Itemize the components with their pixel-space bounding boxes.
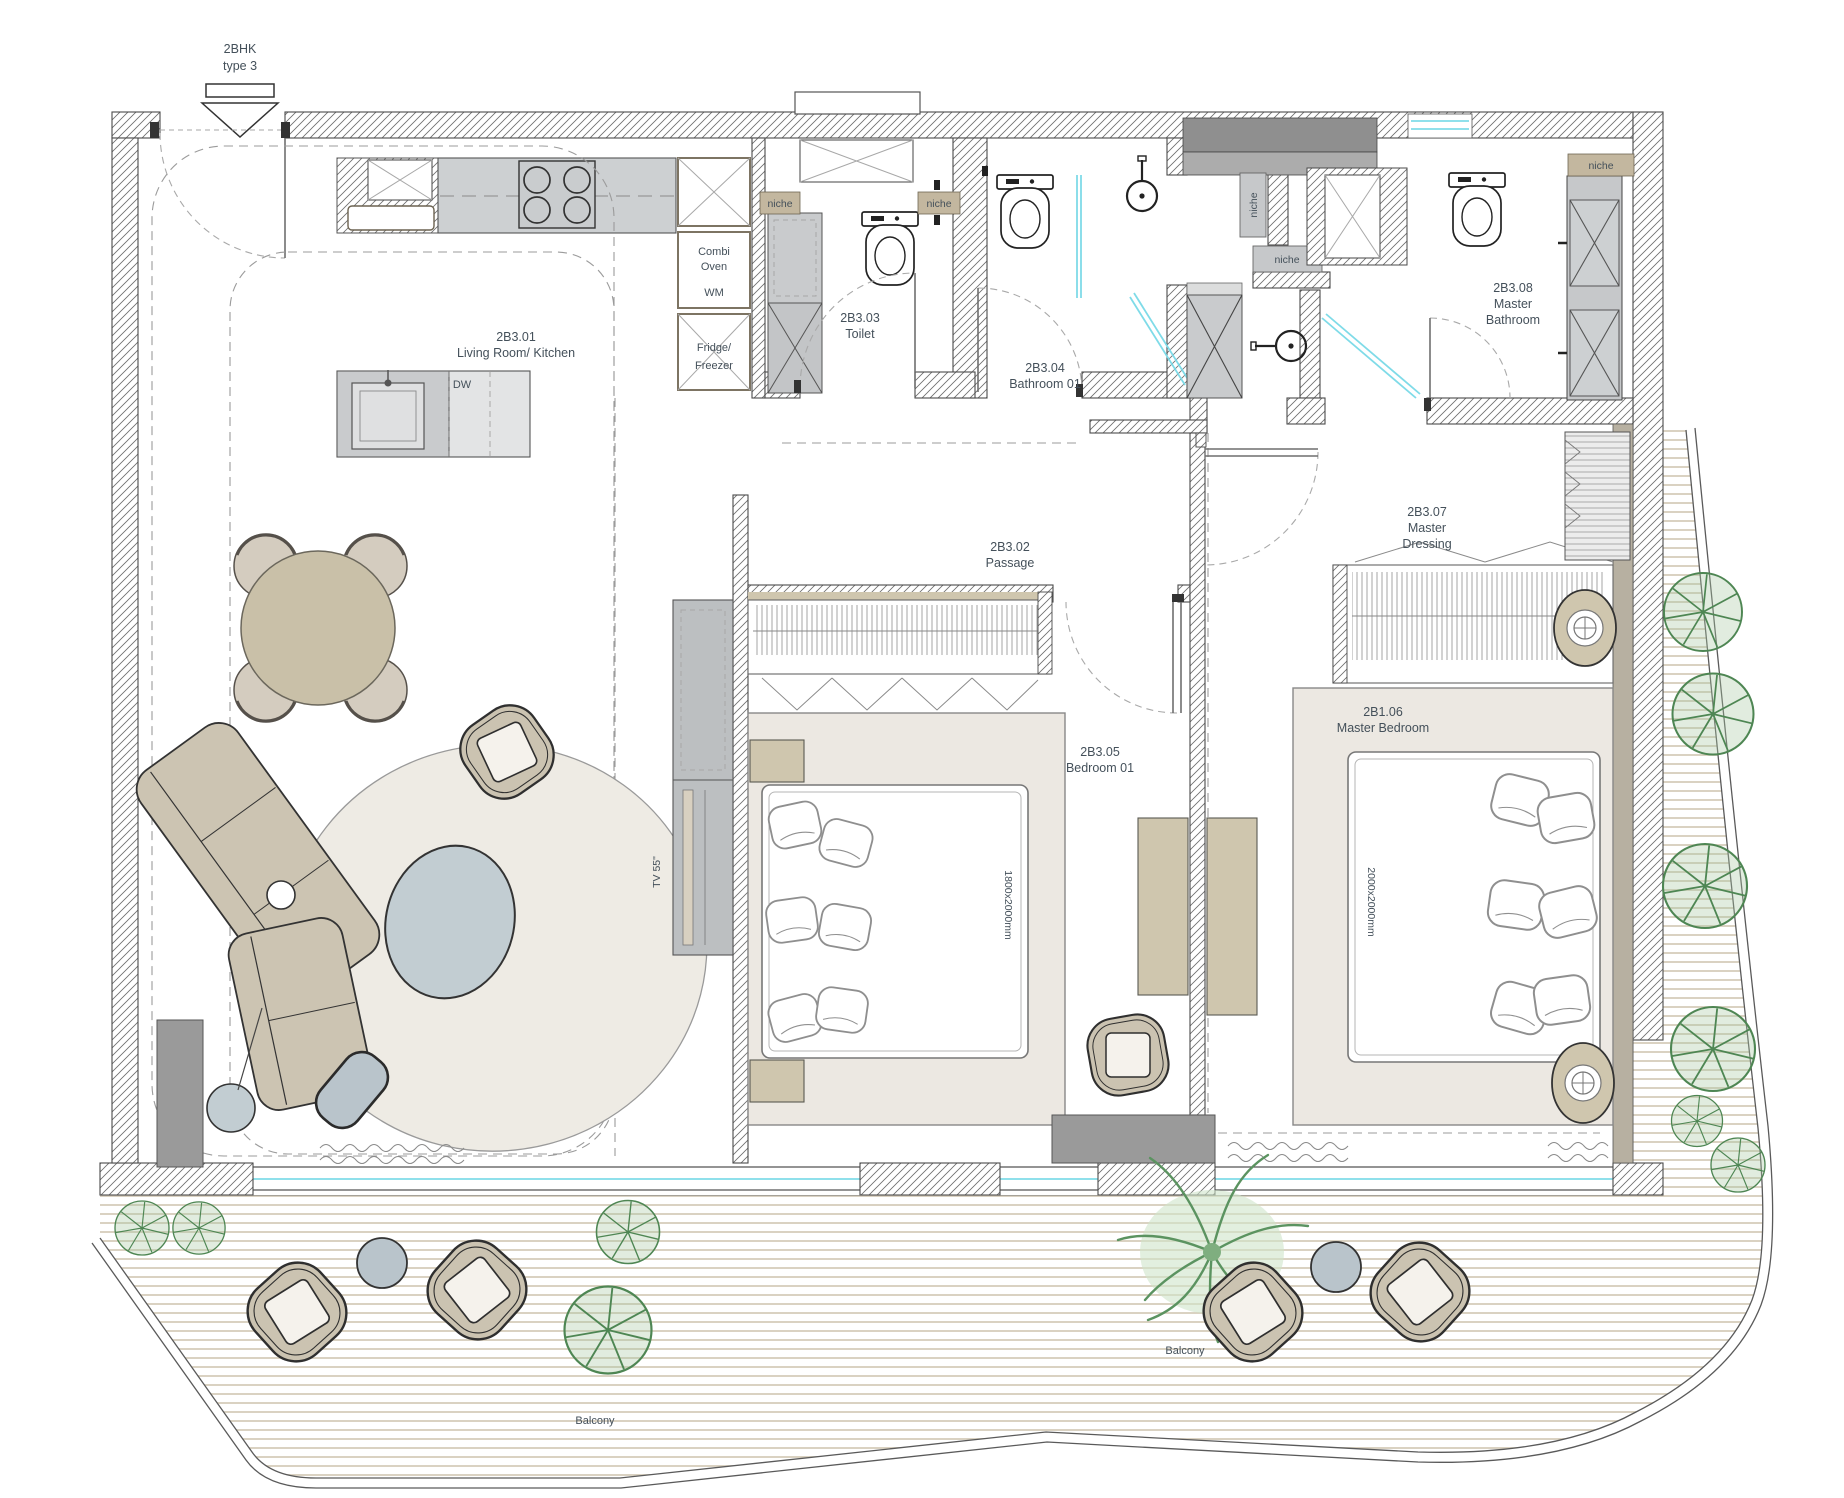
toilet-room	[768, 212, 918, 393]
dressing-cabinet	[1565, 432, 1630, 560]
mbed-side-table-bottom	[1552, 1043, 1614, 1123]
kitchen-tray	[348, 206, 434, 230]
niche-label-1: niche	[767, 198, 792, 210]
bedroom01-bed-size: 1800x2000mm	[1002, 870, 1014, 940]
entrance-arrow-bar	[206, 84, 274, 97]
bathroom01-code: 2B3.04	[1025, 361, 1065, 375]
dining-table	[241, 551, 395, 705]
bedroom01-name: Bedroom 01	[1066, 761, 1134, 775]
floor-plan-page: 2BHK type 3 2B3.01 Living Room/ Kitchen …	[0, 0, 1844, 1498]
tv-label: TV 55"	[651, 856, 663, 888]
master-bathroom	[1307, 168, 1622, 411]
niche-label-4: niche	[1274, 254, 1299, 266]
living-room-furniture	[127, 534, 733, 1179]
toilet-code: 2B3.03	[840, 311, 880, 325]
island-sink	[352, 383, 424, 449]
round-pillow	[267, 881, 295, 909]
fridge-label-2: Freezer	[695, 360, 733, 372]
unit-subtype-label: type 3	[223, 59, 257, 73]
entrance-arrow	[202, 103, 278, 137]
side-table	[207, 1084, 255, 1132]
sideboard	[157, 1020, 203, 1167]
bedroom01-code: 2B3.05	[1080, 745, 1120, 759]
combi-oven-label-1: Combi	[698, 246, 730, 258]
niche-label-3: niche	[1248, 192, 1260, 217]
dishwasher-label: DW	[453, 379, 472, 391]
toilet-name: Toilet	[845, 327, 875, 341]
balcony-table-left	[357, 1238, 407, 1288]
dressing-name-1: Master	[1408, 521, 1446, 535]
tv-wall	[673, 600, 733, 955]
bed01-shelf-bottom	[750, 1060, 804, 1102]
passage-name: Passage	[986, 556, 1035, 570]
parapet	[795, 92, 920, 114]
living-room-code: 2B3.01	[496, 330, 536, 344]
combi-oven-label-2: Oven	[701, 261, 727, 273]
bathroom01-name: Bathroom 01	[1009, 377, 1081, 391]
mbed-code: 2B1.06	[1363, 705, 1403, 719]
mbath-code: 2B3.08	[1493, 281, 1533, 295]
niche-label-5: niche	[1588, 160, 1613, 172]
mbed-dresser	[1207, 818, 1257, 1015]
living-room-name: Living Room/ Kitchen	[457, 346, 575, 360]
mbed-bed-size: 2000x2000mm	[1365, 867, 1377, 937]
dressing-code: 2B3.07	[1407, 505, 1447, 519]
bed01-shelf-top	[750, 740, 804, 782]
bedroom-01	[748, 592, 1215, 1163]
bed01-desk	[1052, 1115, 1215, 1163]
entrance	[150, 84, 290, 258]
toilet-vanity	[768, 213, 822, 303]
balcony-left-label: Balcony	[575, 1415, 615, 1427]
floor-plan-canvas: 2BHK type 3 2B3.01 Living Room/ Kitchen …	[0, 0, 1844, 1498]
niche-label-2: niche	[926, 198, 951, 210]
bottom-glazing	[100, 1163, 1663, 1195]
top-window	[1408, 114, 1472, 138]
mbed-side-table-top	[1554, 590, 1616, 666]
bed01-dresser	[1138, 818, 1188, 995]
passage-code: 2B3.02	[990, 540, 1030, 554]
mbed-name: Master Bedroom	[1337, 721, 1429, 735]
dressing-name-2: Dressing	[1402, 537, 1451, 551]
kitchen	[337, 158, 750, 457]
hob	[519, 161, 595, 228]
washer-label: WM	[704, 287, 724, 299]
mbath-name-1: Master	[1494, 297, 1532, 311]
balcony-right-label: Balcony	[1165, 1345, 1205, 1357]
balcony-table-right	[1311, 1242, 1361, 1292]
mbath-name-2: Bathroom	[1486, 313, 1540, 327]
vanity-counter-dark	[1183, 118, 1377, 152]
fridge-label-1: Fridge/	[697, 342, 732, 354]
tv-cabinet	[673, 600, 733, 955]
unit-type-label: 2BHK	[224, 42, 257, 56]
hanger-marks	[762, 678, 1038, 710]
